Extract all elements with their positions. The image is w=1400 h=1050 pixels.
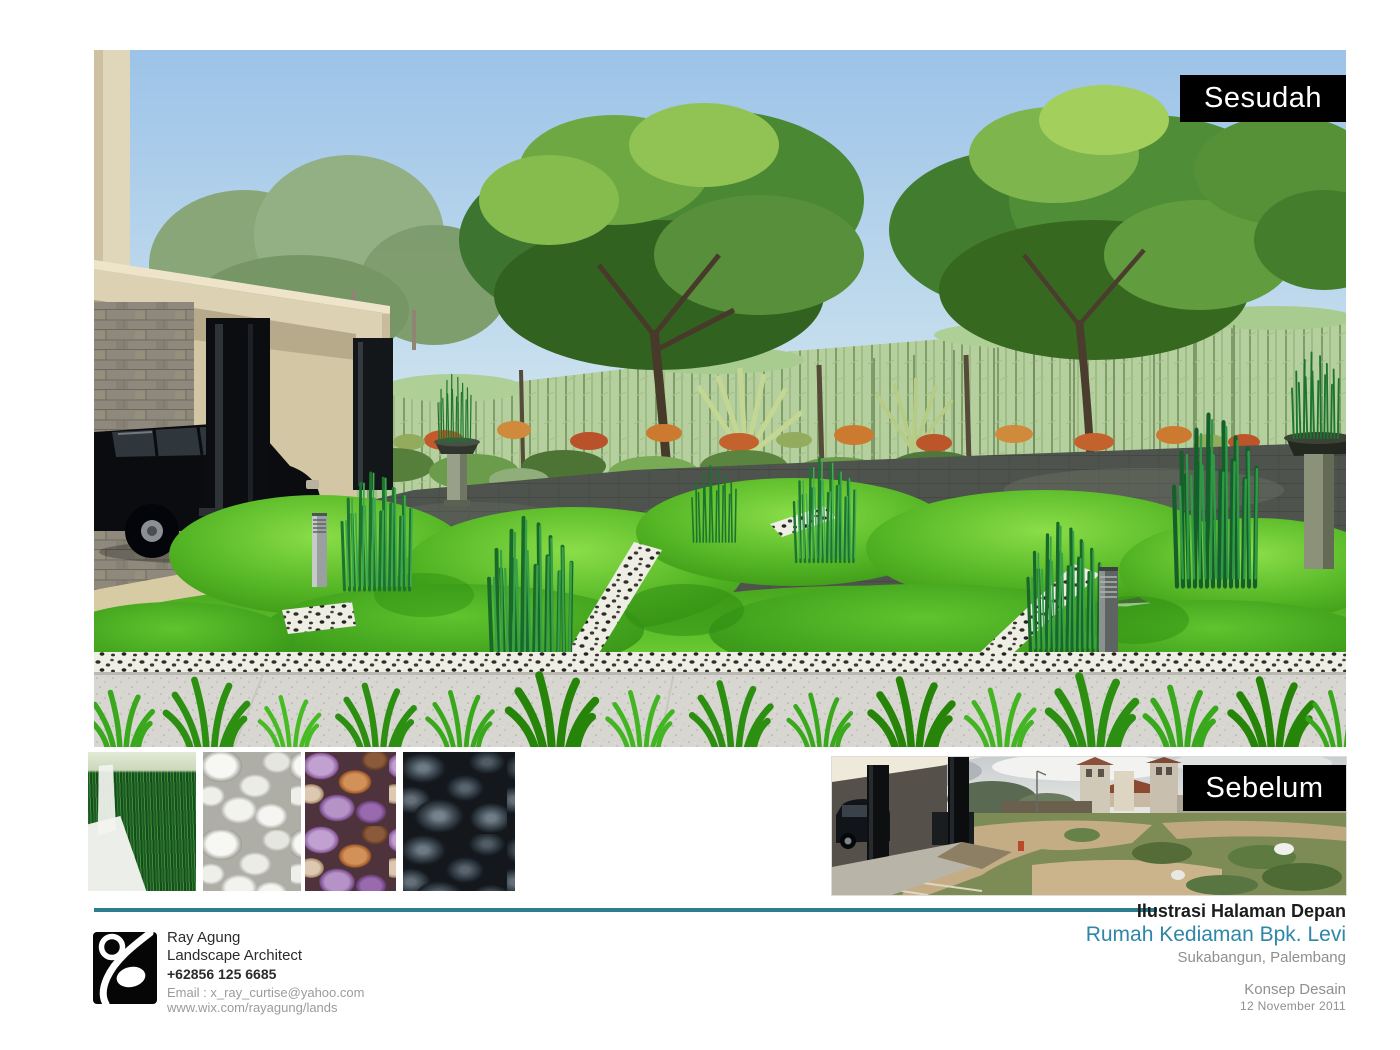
project-client: Rumah Kediaman Bpk. Levi [1086, 923, 1346, 947]
material-swatch-white-pebbles [203, 752, 301, 891]
ray-agung-logo [93, 932, 157, 1004]
after-label: Sesudah [1180, 75, 1346, 122]
project-block: Ilustrasi Halaman Depan Rumah Kediaman B… [1086, 901, 1346, 1014]
after-garden-illustration [94, 50, 1346, 747]
designer-phone: +62856 125 6685 [167, 966, 487, 983]
material-swatch-mixed-pebbles [305, 752, 396, 891]
project-title: Ilustrasi Halaman Depan [1086, 901, 1346, 922]
bollard-light-small [312, 513, 327, 587]
after-label-text: Sesudah [1204, 82, 1322, 115]
designer-website: www.wix.com/rayagung/lands [167, 1000, 487, 1015]
project-location: Sukabangun, Palembang [1086, 949, 1346, 966]
material-swatch-black-stones [403, 752, 515, 891]
before-label: Sebelum [1183, 765, 1346, 811]
presentation-board: Sesudah [0, 0, 1400, 1050]
before-photo-panel: Sebelum [832, 757, 1346, 895]
project-date: 12 November 2011 [1086, 1000, 1346, 1014]
after-render-panel: Sesudah [94, 50, 1346, 747]
designer-title: Landscape Architect [167, 947, 487, 965]
project-phase: Konsep Desain [1086, 981, 1346, 998]
lawn-mounds [94, 478, 1346, 680]
designer-name: Ray Agung [167, 929, 487, 947]
footer-divider [94, 908, 1157, 912]
material-swatch-horsetail-grass [88, 752, 196, 891]
designer-email: Email : x_ray_curtise@yahoo.com [167, 985, 487, 1000]
before-label-text: Sebelum [1206, 772, 1324, 805]
